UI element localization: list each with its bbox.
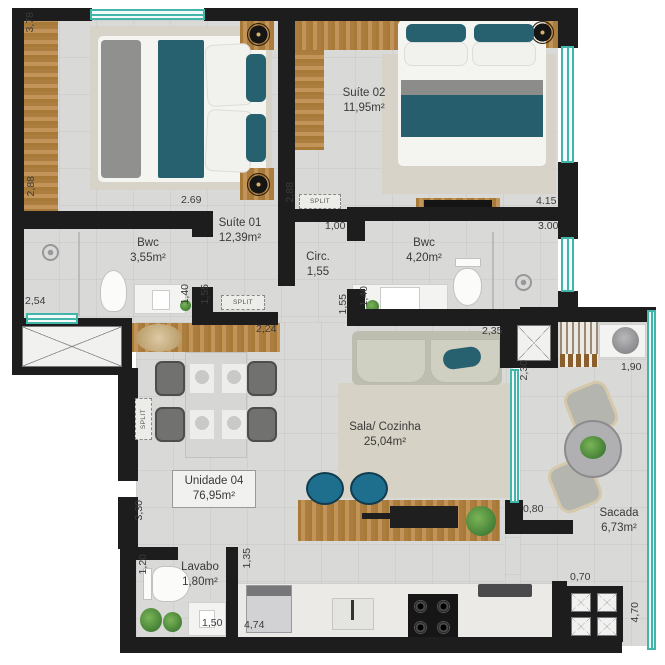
range-hood — [478, 584, 532, 597]
room-area: 6,73m² — [585, 521, 653, 536]
room-name: Sacada — [585, 506, 653, 521]
dimension: 1,90 — [621, 361, 641, 373]
dimension: 3.00 — [538, 220, 558, 232]
wall — [558, 162, 578, 239]
shaft-x-box — [517, 325, 551, 361]
room-label-circ: Circ. 1,55 — [292, 250, 344, 280]
burner-icon — [437, 600, 450, 613]
shower-partition — [492, 232, 494, 314]
shaft-x-box — [22, 326, 122, 367]
dimension: 1,00 — [325, 220, 345, 232]
room-name: Circ. — [292, 250, 344, 265]
dining-chair — [155, 361, 185, 396]
shaft-x-box — [571, 593, 591, 612]
dining-chair — [247, 407, 277, 442]
plant — [140, 608, 162, 632]
room-area: 1,80m² — [160, 575, 240, 590]
shower-head-icon — [515, 274, 532, 291]
dimension: 2,24 — [256, 323, 276, 335]
burner-icon — [437, 621, 450, 634]
dimension: 0,70 — [570, 571, 590, 583]
pillow-teal — [246, 54, 266, 102]
room-label-lavabo: Lavabo 1,80m² — [160, 560, 240, 590]
plant — [466, 506, 496, 536]
wall — [18, 211, 200, 229]
balcony-railing-glass — [647, 310, 656, 650]
wall — [12, 8, 24, 320]
dimension: 1,40 — [358, 286, 370, 306]
pillow — [472, 42, 536, 66]
dining-chair — [155, 407, 185, 442]
room-label-bwc01: Bwc 3,55m² — [112, 236, 184, 266]
room-name: Suíte 02 — [326, 86, 402, 101]
barbecue-grill — [560, 322, 598, 355]
shaft-x-box — [597, 593, 617, 612]
dimension: 1,20 — [137, 554, 149, 574]
dimension: 4.15 — [536, 195, 556, 207]
burner-icon — [414, 621, 427, 634]
bed-runner-teal — [158, 40, 204, 178]
bed-stripe-gray — [401, 80, 543, 95]
wall — [347, 309, 520, 326]
tv-console — [424, 200, 492, 207]
split-label: SPLIT — [140, 409, 147, 429]
dining-chair — [247, 361, 277, 396]
sink-basin — [152, 290, 170, 310]
bar-stool — [306, 472, 344, 505]
bed-throw-gray — [101, 40, 141, 178]
toilet — [100, 270, 127, 312]
room-area: 12,39m² — [202, 231, 278, 246]
bed-runner-teal — [401, 95, 543, 137]
nightstand-decor-icon — [247, 23, 270, 46]
room-name: Bwc — [388, 236, 460, 251]
room-area: 4,20m² — [388, 251, 460, 266]
split-label: SPLIT — [310, 198, 330, 205]
pillow-teal — [474, 24, 534, 42]
split-label: SPLIT — [233, 299, 253, 306]
dimension: 2,30 — [518, 360, 530, 380]
pillow-teal — [406, 24, 466, 42]
room-name: Suíte 01 — [202, 216, 278, 231]
dimension: 1,40 — [179, 284, 191, 304]
place-setting — [189, 409, 215, 440]
dimension: 1,55 — [199, 284, 211, 304]
dimension: 2,54 — [25, 295, 45, 307]
wall — [120, 547, 178, 560]
dimension: 0,80 — [523, 503, 543, 515]
dimension: 1,35 — [241, 548, 253, 568]
island-handle — [362, 513, 392, 519]
room-label-suite01: Suíte 01 12,39m² — [202, 216, 278, 246]
window — [561, 237, 574, 292]
shaft-x-box — [597, 617, 617, 636]
dimension: 4,74 — [244, 619, 264, 631]
burner-icon — [414, 600, 427, 613]
shower-partition — [78, 232, 80, 316]
wall — [505, 520, 573, 534]
shaft-x-box — [571, 617, 591, 636]
wall — [347, 207, 563, 221]
faucet — [351, 600, 354, 620]
room-area: 25,04m² — [325, 435, 445, 450]
dimension: 2.69 — [181, 194, 201, 206]
dimension: 3,30 — [133, 500, 145, 520]
unit-label-box: Unidade 04 76,95m² — [172, 470, 256, 508]
shower-head-icon — [42, 244, 59, 261]
room-area: 3,55m² — [112, 251, 184, 266]
pillow — [404, 42, 468, 66]
dimension: 2,35 — [482, 325, 502, 337]
nightstand-decor-icon — [247, 173, 270, 196]
grill-wood-slats — [560, 354, 598, 367]
dimension: 3,78 — [24, 12, 36, 32]
unit-area: 76,95m² — [175, 489, 253, 504]
wall — [204, 8, 578, 21]
room-name: Lavabo — [160, 560, 240, 575]
balcony-basin — [612, 327, 639, 354]
plant — [163, 612, 182, 632]
dimension: 4,70 — [629, 602, 641, 622]
room-label-bwc02: Bwc 4,20m² — [388, 236, 460, 266]
sliding-glass-door — [510, 369, 519, 503]
window — [90, 9, 205, 20]
wall — [120, 549, 136, 639]
dimension: 1,55 — [337, 294, 349, 314]
toilet — [453, 268, 482, 306]
window — [561, 46, 574, 163]
island-cooktop — [390, 506, 458, 528]
room-label-suite02: Suíte 02 11,95m² — [326, 86, 402, 116]
pillow-teal — [246, 114, 266, 162]
place-setting — [221, 363, 247, 394]
dimension: 2,88 — [25, 176, 37, 196]
room-name: Bwc — [112, 236, 184, 251]
wall — [558, 10, 578, 48]
split-ac-marker: SPLIT — [299, 194, 341, 209]
room-label-sacada: Sacada 6,73m² — [585, 506, 653, 536]
dimension: 1,50 — [202, 617, 222, 629]
room-area: 1,55 — [292, 265, 344, 280]
unit-name: Unidade 04 — [175, 474, 253, 489]
room-area: 11,95m² — [326, 101, 402, 116]
floor-plan: Suíte 01 12,39m² Suíte 02 11,95m² Bwc 3,… — [0, 0, 665, 665]
dried-flowers-decor — [136, 324, 182, 352]
split-ac-marker: SPLIT — [221, 295, 265, 310]
nightstand-decor-icon — [531, 21, 554, 44]
room-name: Sala/ Cozinha — [325, 420, 445, 435]
wall — [347, 207, 365, 241]
split-ac-marker: SPLIT — [135, 398, 152, 440]
wall — [120, 637, 622, 653]
window — [26, 313, 78, 324]
sofa-cushion — [356, 339, 426, 383]
dimension: 2,88 — [284, 182, 296, 202]
place-setting — [189, 363, 215, 394]
wall — [278, 10, 295, 286]
place-setting — [221, 409, 247, 440]
plant — [580, 436, 606, 459]
bar-stool — [350, 472, 388, 505]
room-label-sala: Sala/ Cozinha 25,04m² — [325, 420, 445, 450]
